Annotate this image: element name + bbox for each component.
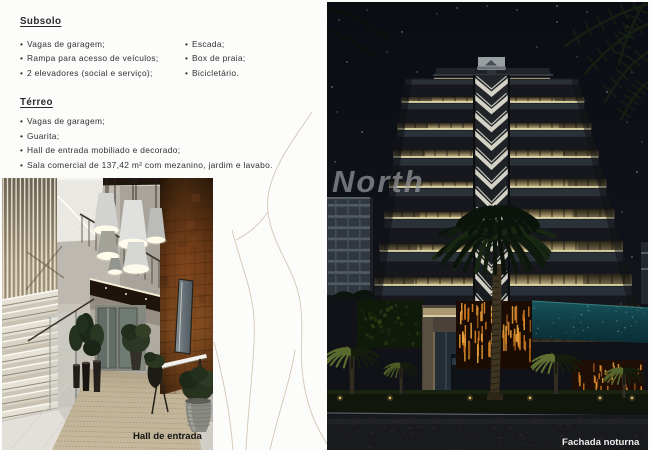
svg-text:North: North: [332, 164, 425, 199]
svg-text:Fachada noturna: Fachada noturna: [562, 437, 640, 448]
svg-text:Hall de entrada: Hall de entrada: [133, 431, 202, 442]
